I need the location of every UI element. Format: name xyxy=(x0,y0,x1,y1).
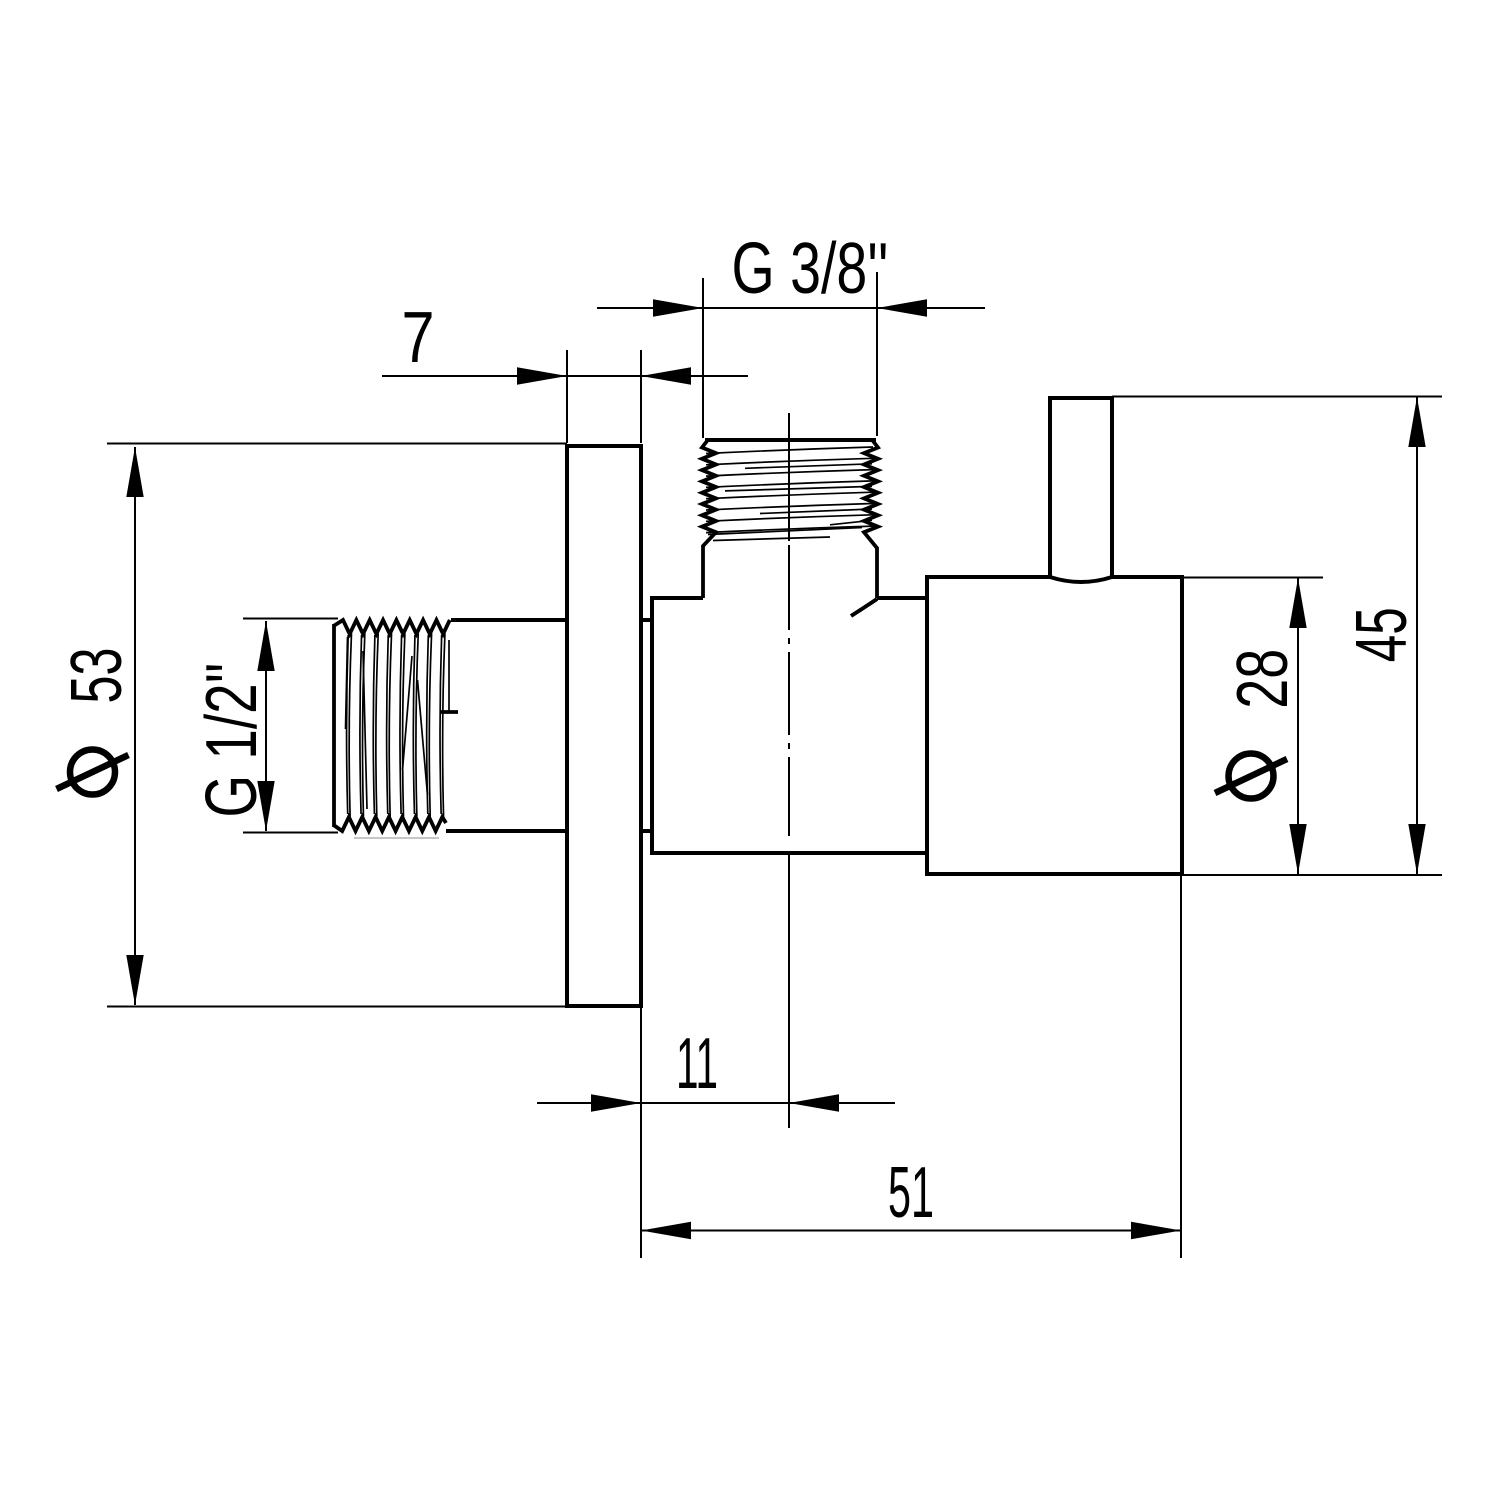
svg-text:G 3/8'': G 3/8'' xyxy=(732,229,889,309)
svg-text:11: 11 xyxy=(676,1024,718,1104)
svg-text:G 1/2'': G 1/2'' xyxy=(192,663,272,818)
svg-text:45: 45 xyxy=(1342,607,1422,662)
svg-text:53: 53 xyxy=(57,648,137,704)
svg-text:51: 51 xyxy=(888,1153,934,1233)
svg-text:28: 28 xyxy=(1223,649,1303,709)
svg-text:7: 7 xyxy=(402,298,435,378)
